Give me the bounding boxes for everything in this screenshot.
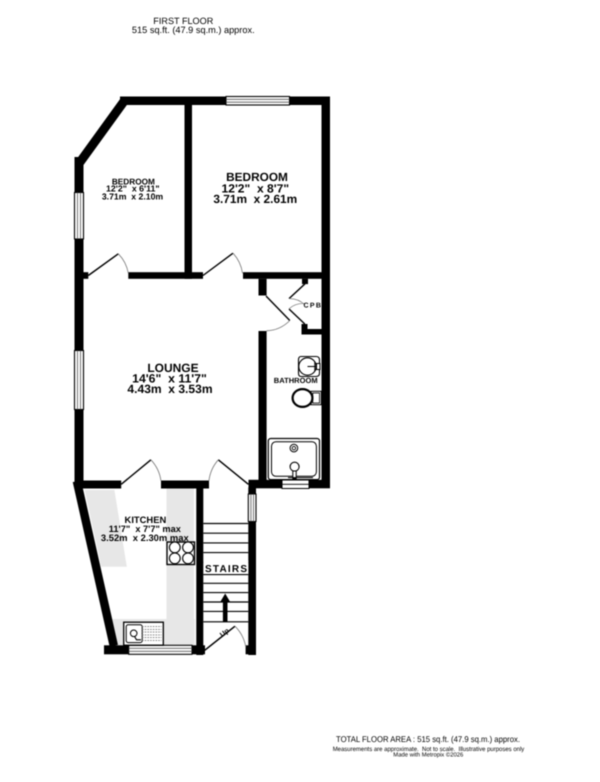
svg-text:Made with Metropix ©2026: Made with Metropix ©2026 xyxy=(393,752,464,759)
svg-text:515 sq.ft. (47.9 sq.m.) approx: 515 sq.ft. (47.9 sq.m.) approx. xyxy=(132,25,255,35)
svg-text:STAIRS: STAIRS xyxy=(205,564,247,575)
svg-text:TOTAL FLOOR AREA : 515 sq.ft.: TOTAL FLOOR AREA : 515 sq.ft. (47.9 sq.m… xyxy=(336,734,520,744)
svg-text:4.43m x 3.53m: 4.43m x 3.53m xyxy=(127,382,212,396)
svg-text:BATHROOM: BATHROOM xyxy=(274,376,318,385)
svg-text:3.71m x 2.61m: 3.71m x 2.61m xyxy=(213,192,297,206)
svg-text:3.52m x 2.30m max: 3.52m x 2.30m max xyxy=(101,533,190,543)
svg-text:3.71m x 2.10m: 3.71m x 2.10m xyxy=(102,191,164,201)
svg-text:CPB: CPB xyxy=(303,302,321,309)
